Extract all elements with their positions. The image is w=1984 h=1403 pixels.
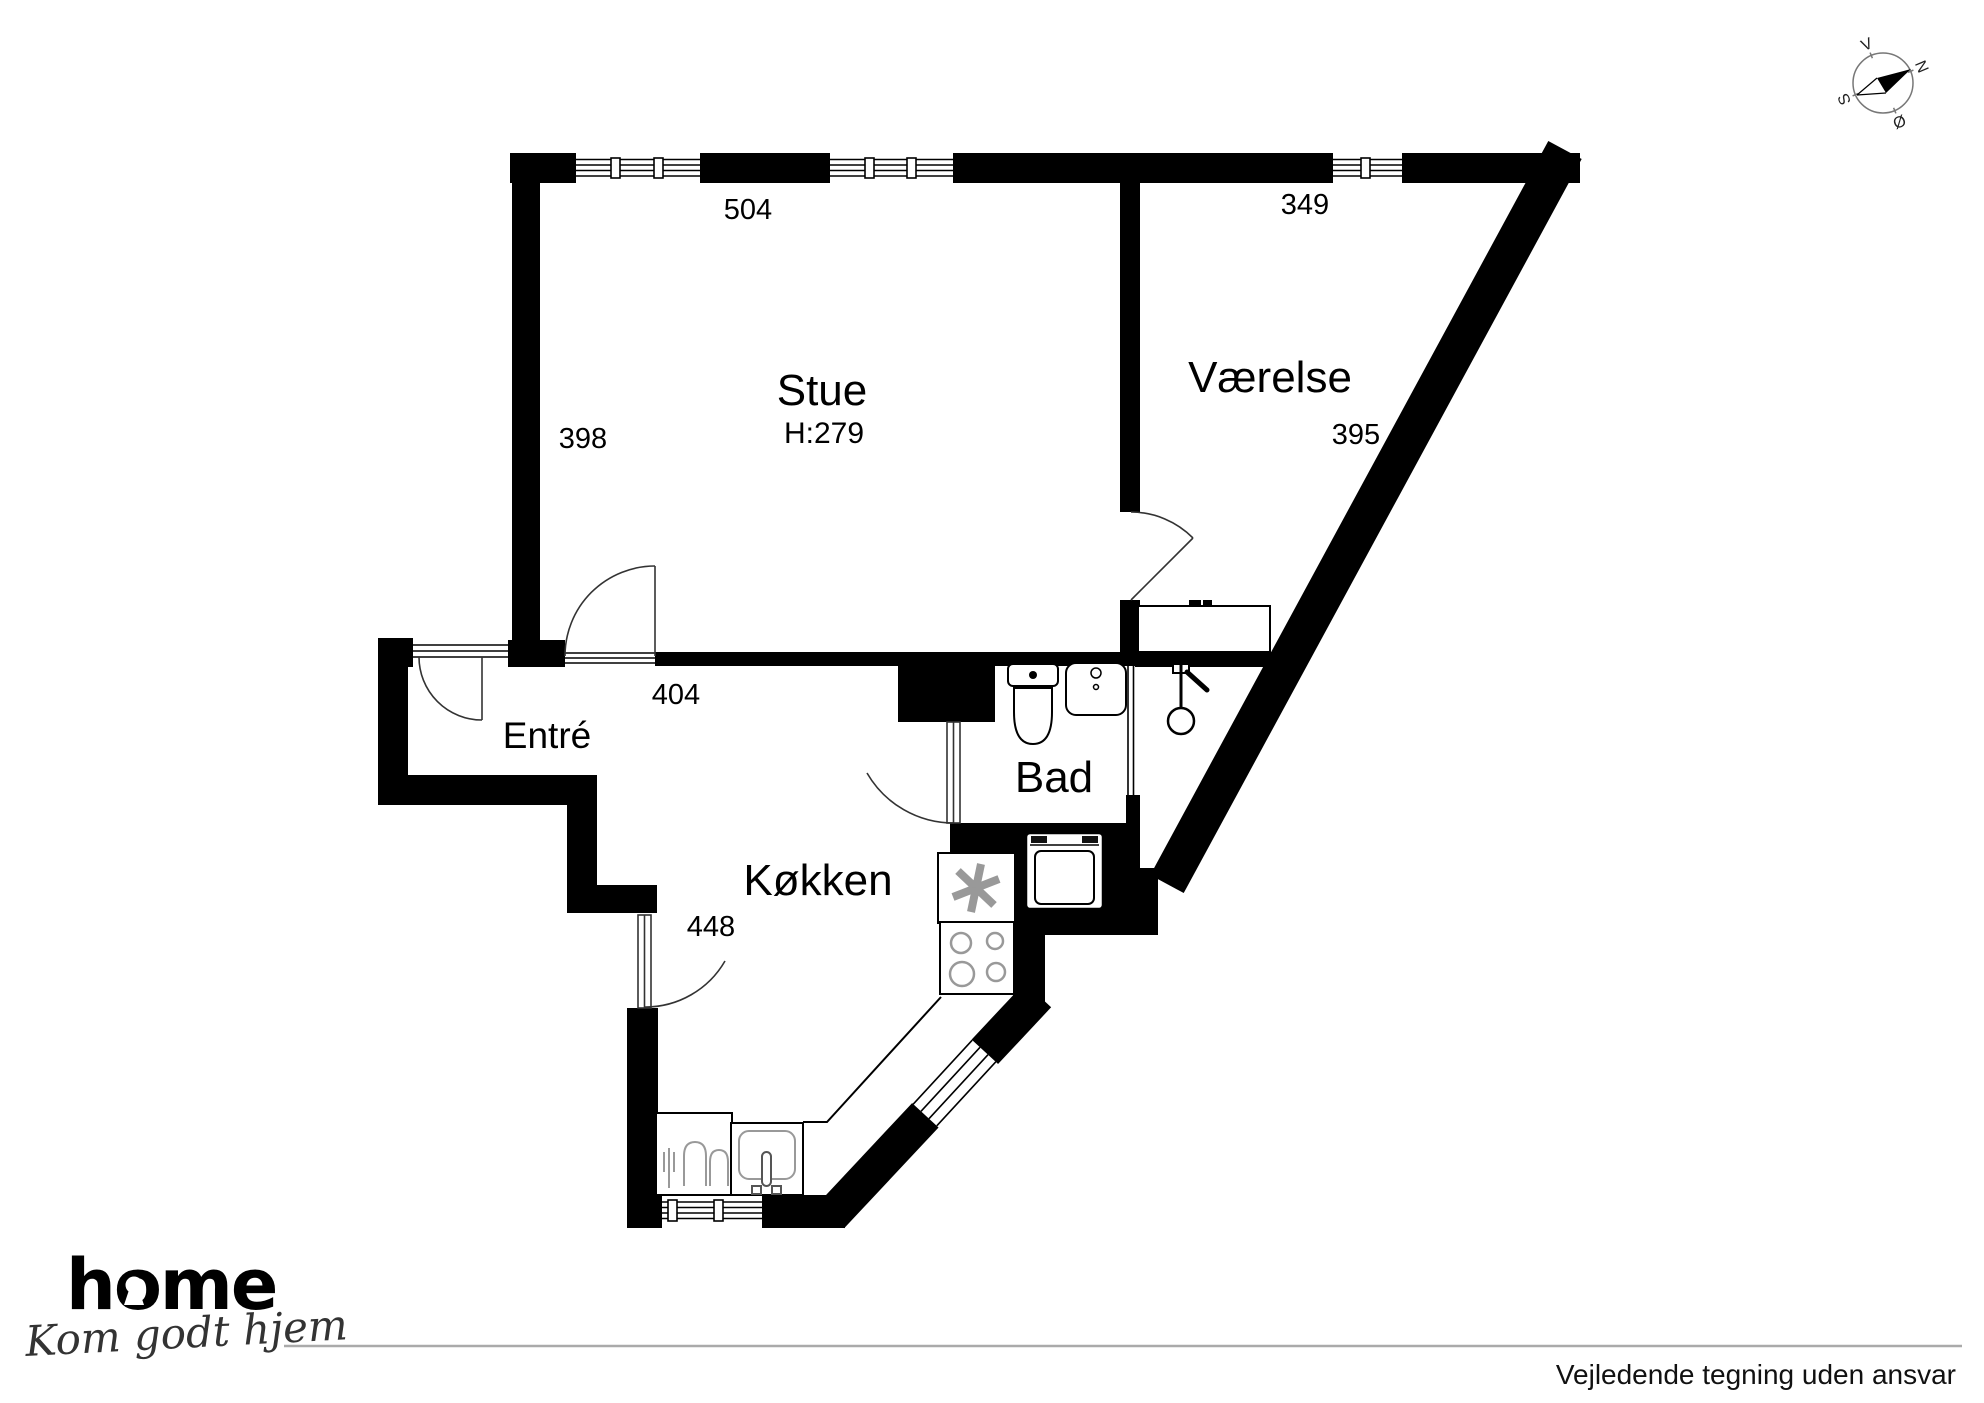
room-label-entre: Entré <box>503 715 591 756</box>
ceiling-height-note: H:279 <box>784 417 864 450</box>
washing-machine-icon <box>1026 833 1103 909</box>
room-label-vaerelse: Værelse <box>1188 353 1352 402</box>
dim-vaerelse-depth: 395 <box>1332 419 1380 451</box>
disclaimer-text: Vejledende tegning uden ansvar <box>1556 1359 1956 1390</box>
room-label-bad: Bad <box>1015 753 1093 802</box>
stove-icon <box>940 922 1014 994</box>
floorplan-drawing: N V S Ø Stue H:279 Værelse Entré Køkken … <box>0 0 1984 1403</box>
sideboard-icon <box>1138 600 1270 652</box>
floorplan-page: N V S Ø Stue H:279 Værelse Entré Køkken … <box>0 0 1984 1403</box>
extractor-fan-icon <box>938 853 1015 923</box>
dim-vaerelse-width: 349 <box>1281 189 1329 221</box>
dim-stue-width: 504 <box>724 194 772 226</box>
kitchen-sink-icon <box>731 1123 803 1195</box>
dim-koekken-width: 448 <box>687 911 735 943</box>
room-label-stue: Stue <box>777 366 868 415</box>
room-label-koekken: Køkken <box>743 856 892 905</box>
dish-rack-icon <box>656 1113 732 1195</box>
dim-stue-depth: 398 <box>559 423 607 455</box>
bathroom-sink-icon <box>1066 663 1126 715</box>
dim-stue-opening: 404 <box>652 679 700 711</box>
